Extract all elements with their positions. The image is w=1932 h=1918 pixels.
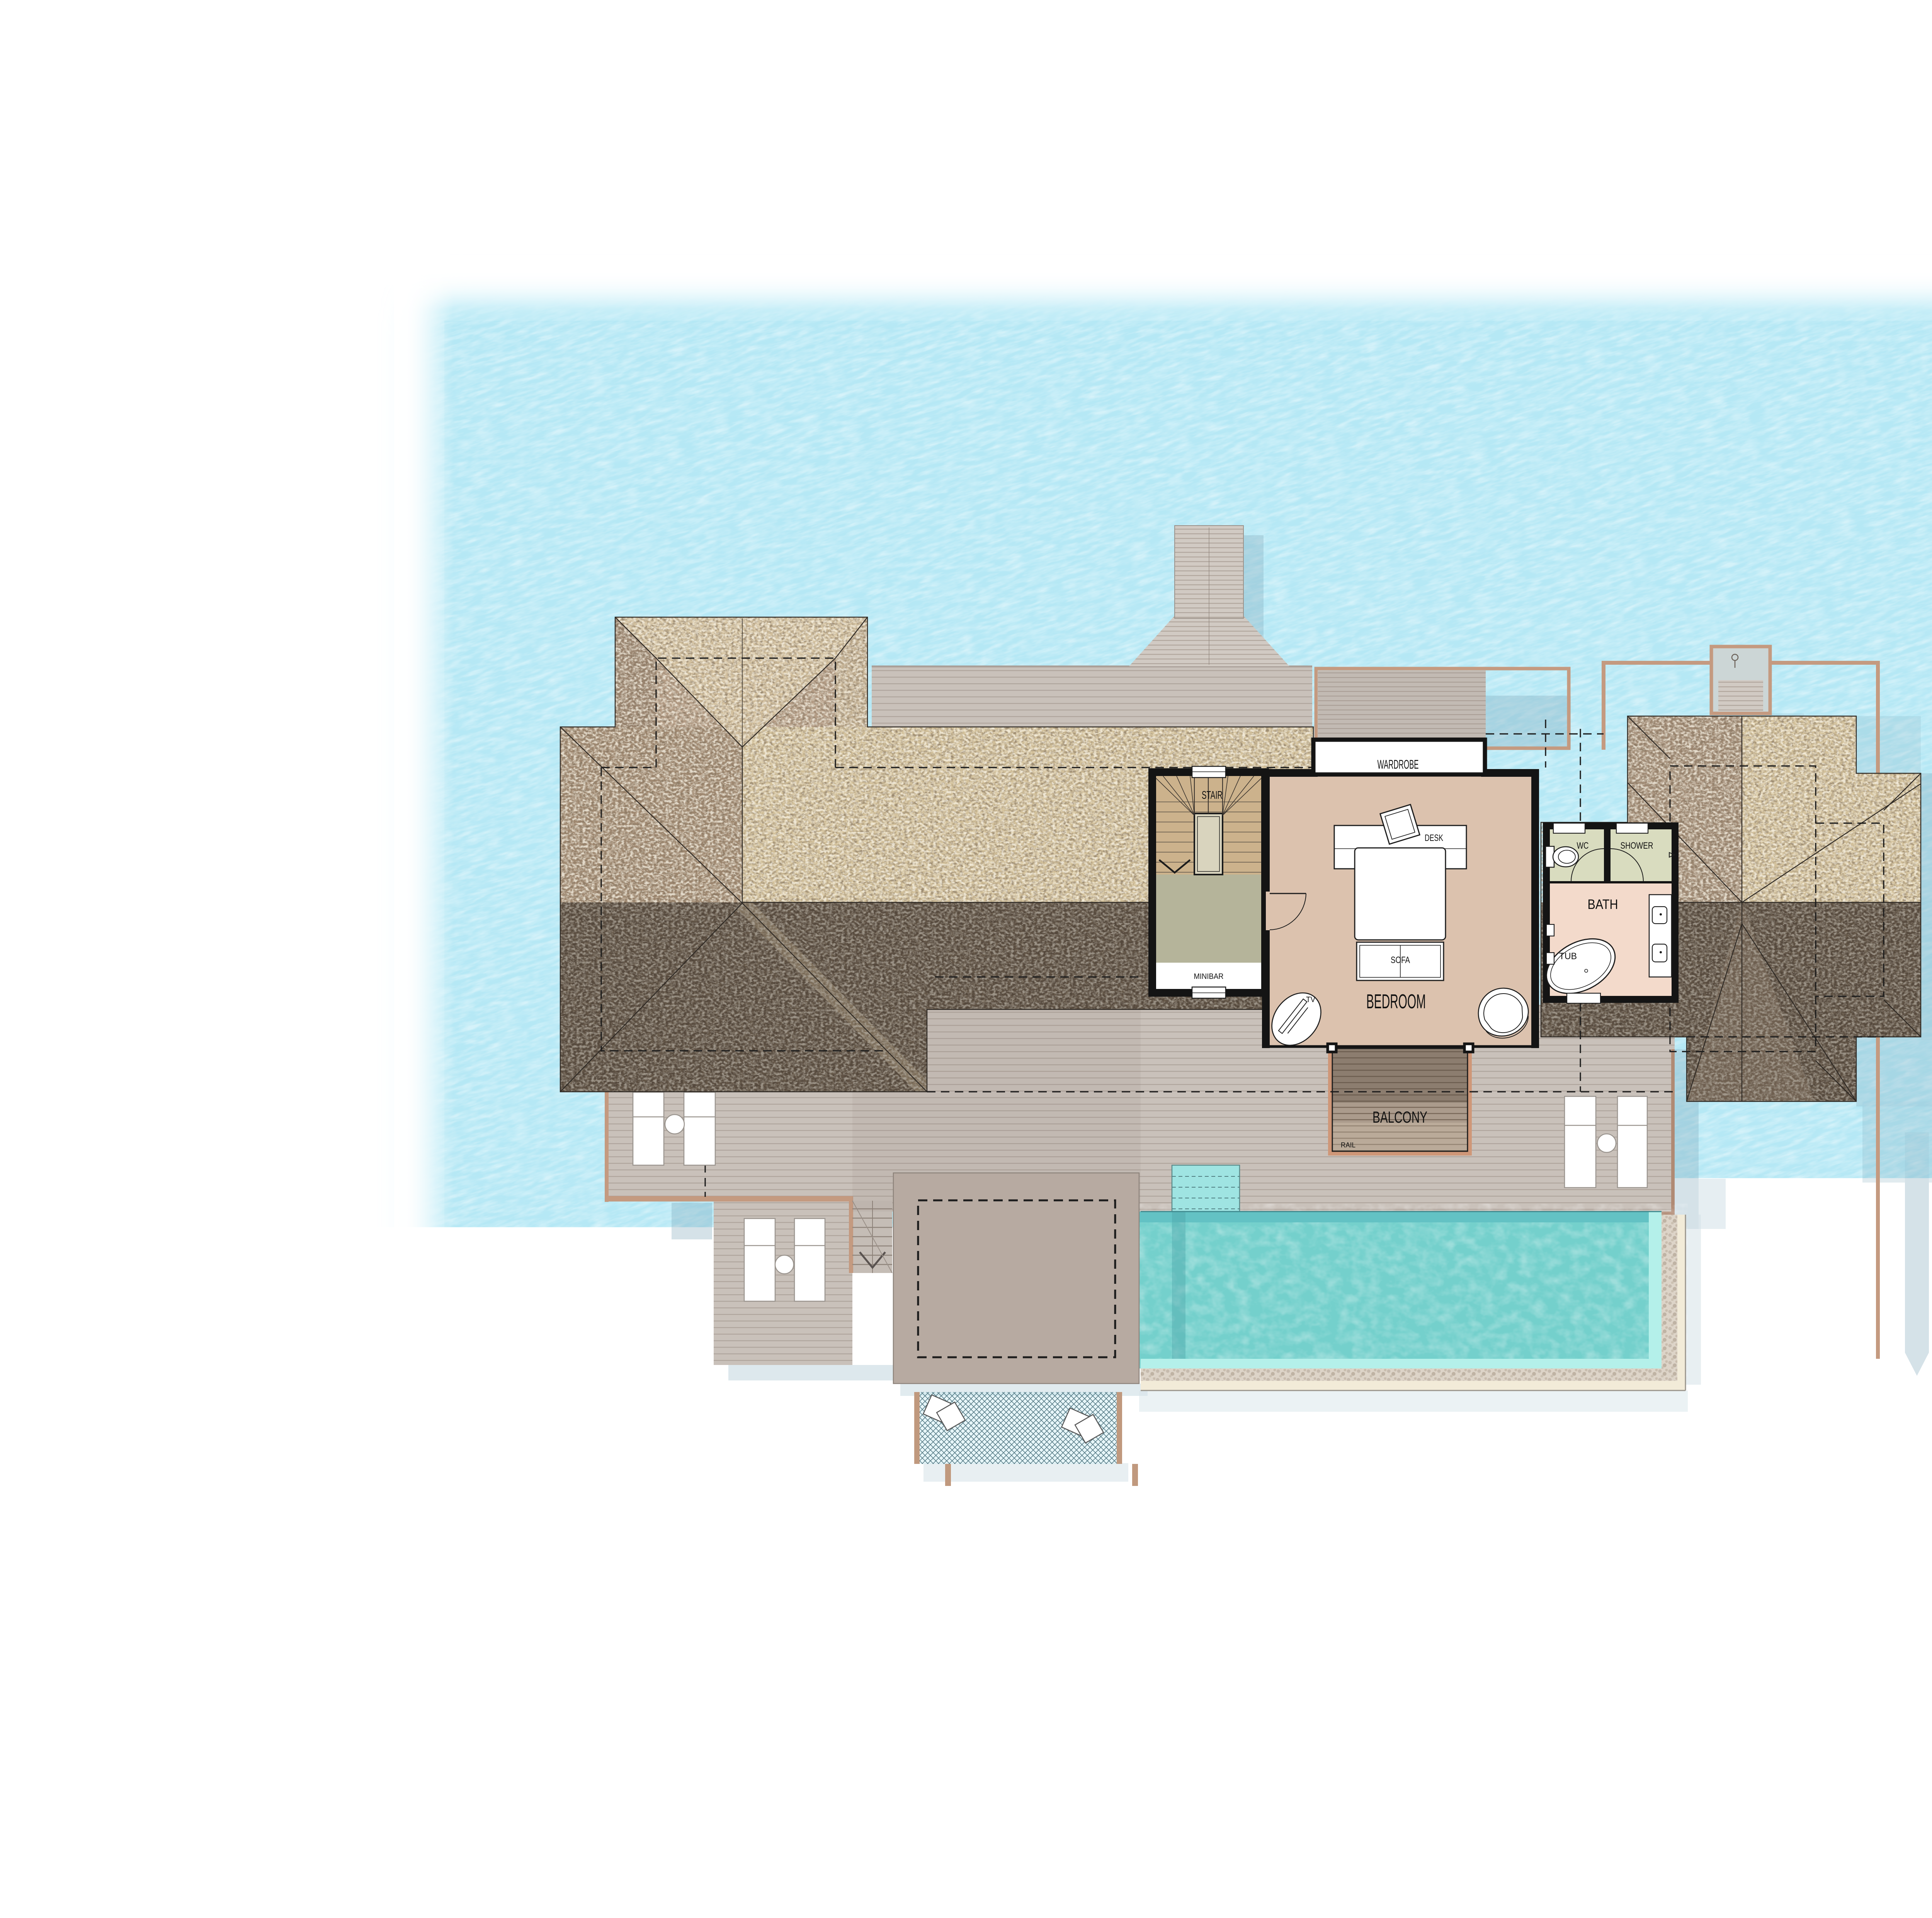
svg-text:SHOWER: SHOWER (1621, 841, 1653, 851)
svg-text:RAIL: RAIL (1341, 1141, 1355, 1149)
svg-text:BATH: BATH (1588, 897, 1618, 912)
svg-text:TV: TV (1306, 996, 1316, 1004)
svg-text:WARDROBE: WARDROBE (1378, 757, 1419, 771)
svg-text:DESK: DESK (1425, 833, 1443, 843)
svg-text:TUB: TUB (1559, 951, 1577, 962)
svg-text:STAIR: STAIR (1202, 789, 1223, 802)
svg-text:SOFA: SOFA (1391, 955, 1410, 965)
svg-text:WC: WC (1577, 841, 1589, 851)
svg-text:BALCONY: BALCONY (1372, 1108, 1427, 1126)
svg-text:BEDROOM: BEDROOM (1366, 990, 1426, 1013)
svg-text:MINIBAR: MINIBAR (1194, 972, 1224, 981)
